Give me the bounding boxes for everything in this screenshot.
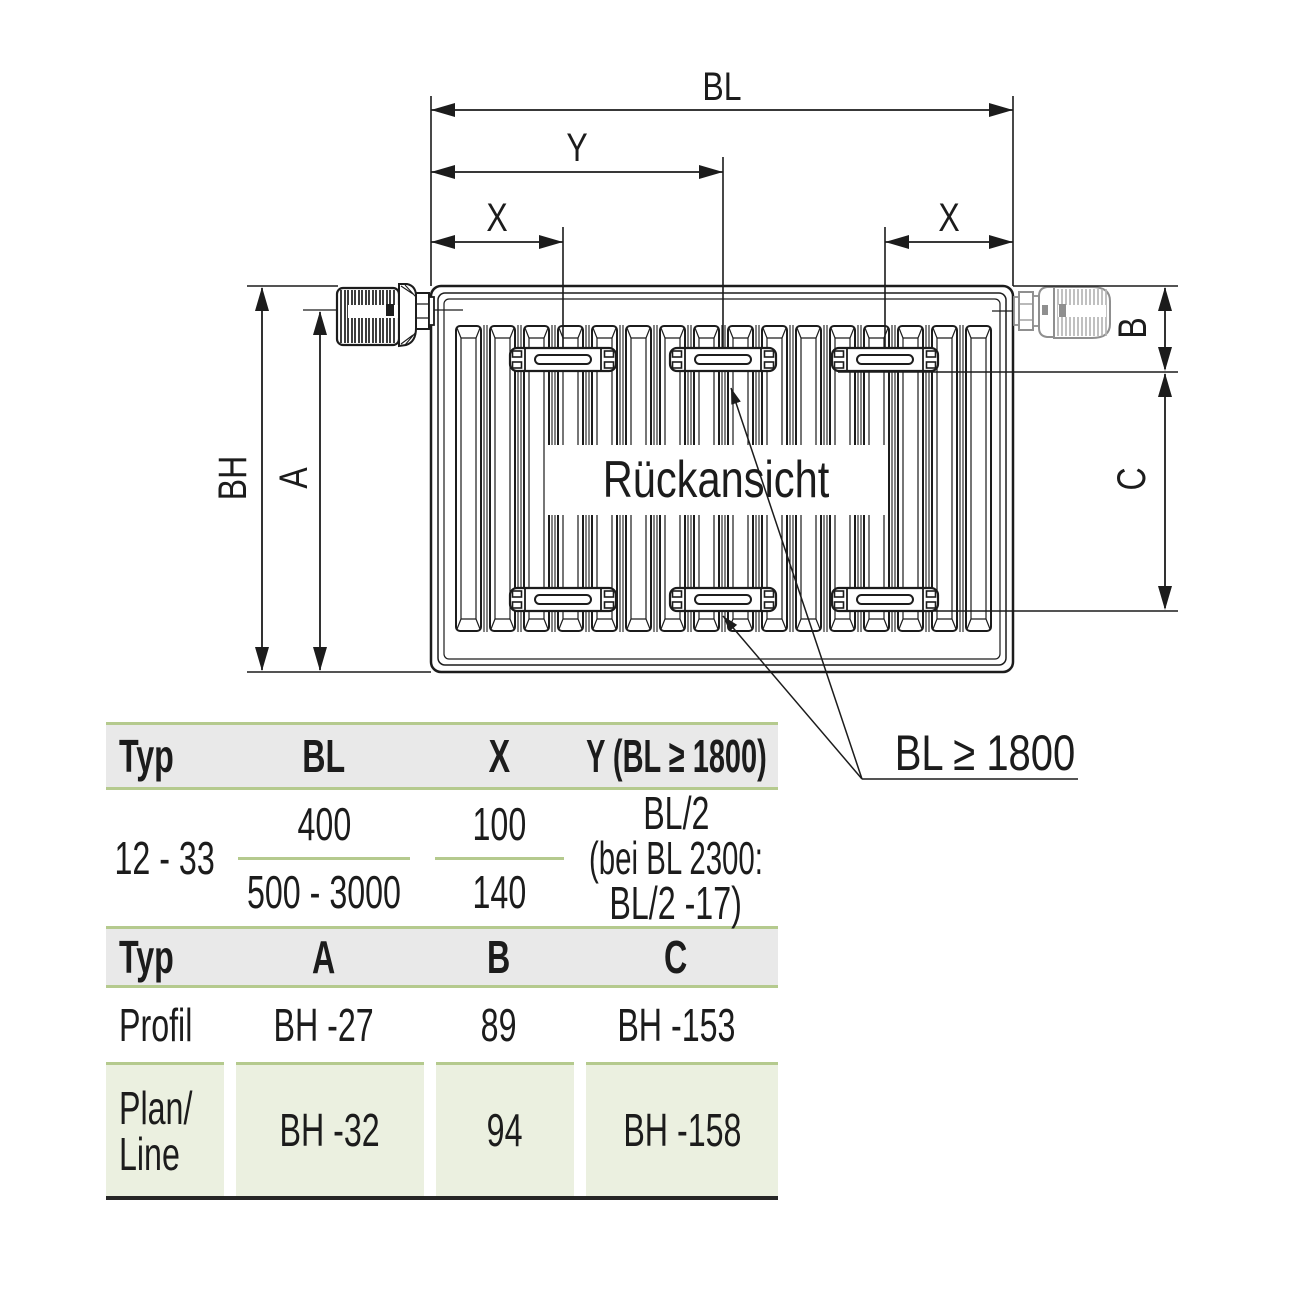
dim-label-x-left: X bbox=[486, 195, 507, 240]
callout-label: BL ≥ 1800 bbox=[895, 725, 1076, 781]
cell-a: BH -27 bbox=[224, 988, 424, 1062]
header-c: C bbox=[574, 929, 778, 985]
dim-label-c: C bbox=[1109, 467, 1154, 490]
cell-bl-values: 400 500 - 3000 bbox=[224, 790, 424, 926]
cell-b: 94 bbox=[436, 1062, 574, 1196]
header-x: X bbox=[424, 725, 574, 787]
cell-y-formula: BL/2 (bei BL 2300: BL/2 -17) bbox=[574, 790, 778, 926]
dim-label-x-right: X bbox=[938, 195, 959, 240]
header-y: Y (BL ≥ 1800) bbox=[574, 725, 778, 787]
header-typ: Typ bbox=[106, 725, 224, 787]
header-a: A bbox=[224, 929, 424, 985]
types-table-row-plan-line: Plan/ Line BH -32 94 BH -158 bbox=[106, 1062, 778, 1196]
mounting-table-row: 12 - 33 400 500 - 3000 100 140 BL/2 (bei… bbox=[106, 790, 778, 929]
cell-typ: Profil bbox=[106, 988, 224, 1062]
table-bottom-rule bbox=[106, 1196, 778, 1200]
dim-label-y: Y bbox=[566, 125, 587, 170]
dim-label-bl: BL bbox=[702, 64, 741, 109]
header-bl: BL bbox=[224, 725, 424, 787]
dim-label-bh: BH bbox=[210, 456, 255, 500]
header-b: B bbox=[424, 929, 574, 985]
dim-label-b: B bbox=[1110, 317, 1155, 338]
types-table-header: Typ A B C bbox=[106, 929, 778, 988]
cell-x-values: 100 140 bbox=[424, 790, 574, 926]
cell-a: BH -32 bbox=[236, 1062, 424, 1196]
types-table-row-profil: Profil BH -27 89 BH -153 bbox=[106, 988, 778, 1062]
cell-typ-range: 12 - 33 bbox=[106, 790, 224, 926]
view-label: Rückansicht bbox=[603, 450, 830, 509]
dimension-tables: Typ BL X Y (BL ≥ 1800) 12 - 33 400 500 -… bbox=[106, 722, 778, 1200]
cell-b: 89 bbox=[424, 988, 574, 1062]
header-typ: Typ bbox=[106, 929, 224, 985]
cell-typ: Plan/ Line bbox=[106, 1062, 224, 1196]
cell-c: BH -153 bbox=[574, 988, 778, 1062]
dim-label-a: A bbox=[271, 467, 316, 489]
mounting-table-header: Typ BL X Y (BL ≥ 1800) bbox=[106, 722, 778, 790]
cell-c: BH -158 bbox=[586, 1062, 778, 1196]
radiator-spec-page: Rückansicht BL ≥ 1800 bbox=[0, 0, 1300, 1300]
